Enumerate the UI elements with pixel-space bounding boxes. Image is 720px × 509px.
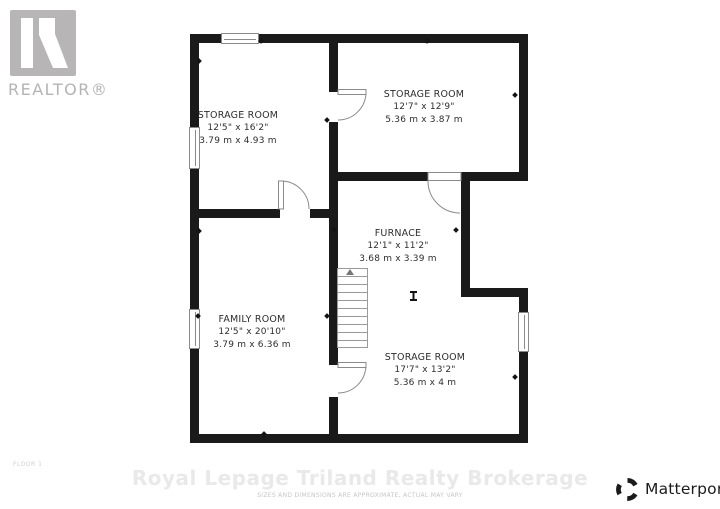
room-label-storage-top-left: STORAGE ROOM 12'5" x 16'2" 3.79 m x 4.93… (153, 109, 323, 148)
room-dim-imperial: 12'5" x 16'2" (153, 122, 323, 135)
room-dim-metric: 3.79 m x 6.36 m (167, 339, 337, 352)
wall-right-upper (519, 34, 528, 181)
window-pane (524, 315, 525, 349)
room-name: STORAGE ROOM (340, 351, 510, 364)
door-arc (281, 181, 309, 209)
door-arc (428, 181, 460, 213)
door-leaf (279, 181, 284, 209)
room-dim-imperial: 12'5" x 20'10" (167, 326, 337, 339)
matterport-wordmark: Matterport™ (645, 480, 720, 498)
room-dim-metric: 5.36 m x 4 m (340, 377, 510, 390)
support-column-icon (409, 291, 418, 301)
wall-storage-family-a (190, 209, 280, 218)
window-pane (224, 39, 256, 40)
wall-mid-vertical-a (329, 34, 338, 92)
room-dim-imperial: 17'7" x 13'2" (340, 364, 510, 377)
room-dim-metric: 3.68 m x 3.39 m (313, 253, 483, 266)
room-label-family-room: FAMILY ROOM 12'5" x 20'10" 3.79 m x 6.36… (167, 313, 337, 352)
brokerage-watermark: Royal Lepage Triland Realty Brokerage (0, 466, 720, 490)
room-name: STORAGE ROOM (339, 88, 509, 101)
room-name: FURNACE (313, 227, 483, 240)
room-dim-imperial: 12'1" x 11'2" (313, 240, 483, 253)
wall-notch-bottom (461, 288, 528, 297)
room-dim-metric: 5.36 m x 3.87 m (339, 114, 509, 127)
staircase-direction-icon (346, 269, 354, 275)
room-label-storage-top-right: STORAGE ROOM 12'7" x 12'9" 5.36 m x 3.87… (339, 88, 509, 127)
window-right-lower (518, 312, 529, 352)
wall-bottom (190, 434, 528, 443)
dimension-tick (512, 374, 518, 380)
door-leaf (428, 173, 461, 181)
wall-storage-furnace-a (329, 172, 428, 181)
wall-left (190, 34, 199, 443)
realtor-wordmark: REALTOR® (8, 80, 108, 99)
matterport-logo: Matterport™ (616, 477, 720, 501)
room-name: STORAGE ROOM (153, 109, 323, 122)
staircase (337, 268, 368, 348)
matterport-icon (616, 478, 639, 501)
room-dim-imperial: 12'7" x 12'9" (339, 101, 509, 114)
realtor-logo-icon (10, 10, 76, 76)
door-storage-to-family (276, 177, 316, 221)
room-dim-metric: 3.79 m x 4.93 m (153, 135, 323, 148)
disclaimer-text: SIZES AND DIMENSIONS ARE APPROXIMATE, AC… (0, 492, 720, 499)
room-label-furnace: FURNACE 12'1" x 11'2" 3.68 m x 3.39 m (313, 227, 483, 266)
room-label-storage-bottom: STORAGE ROOM 17'7" x 13'2" 5.36 m x 4 m (340, 351, 510, 390)
door-storage-to-furnace (424, 168, 496, 218)
dimension-tick (512, 92, 518, 98)
room-name: FAMILY ROOM (167, 313, 337, 326)
window-top (221, 33, 259, 44)
wall-mid-vertical-c (329, 397, 338, 443)
